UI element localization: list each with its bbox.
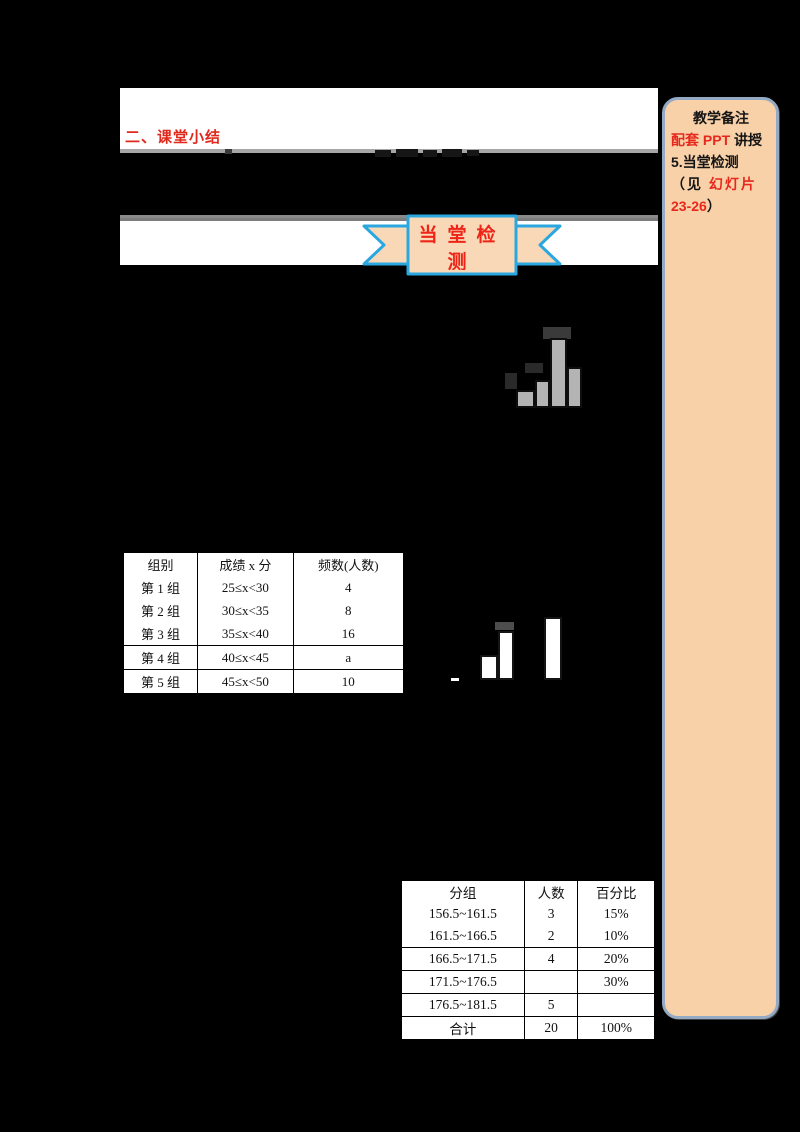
table-cell: 176.5~181.5 [401,994,524,1017]
table-row: 第 4 组 40≤x<45 a [123,646,404,670]
sidebar-black-text: （见 [671,176,709,192]
table-cell: 166.5~171.5 [401,948,524,971]
table-cell: a [293,646,404,670]
table-cell: 4 [524,948,578,971]
histogram-fragment-white [448,612,578,682]
table-header-cell: 分组 [401,880,524,903]
table-row: 176.5~181.5 5 [401,994,655,1017]
table-header-cell: 频数(人数) [293,552,404,576]
table-header-cell: 百分比 [578,880,655,903]
table-cell: 161.5~166.5 [401,925,524,948]
table-row: 166.5~171.5 4 20% [401,948,655,971]
sidebar-line-ppt: 配套 PPT 讲授 [671,129,771,151]
table-cell: 第 3 组 [123,622,198,646]
ribbon-title: 当堂检测 [410,222,514,270]
ribbon-banner: 当堂检测 [360,214,564,278]
table-header-row: 组别 成绩 x 分 频数(人数) [123,552,404,576]
sidebar-black-text: 讲授 [734,132,762,148]
table-header-cell: 人数 [524,880,578,903]
table-cell [578,994,655,1017]
table-cell: 2 [524,925,578,948]
table-cell: 8 [293,599,404,622]
masked-text-fragment [423,150,437,157]
sidebar-line-see: （见 幻灯片 [671,173,771,195]
table-cell: 35≤x<40 [198,622,294,646]
masked-content-band [120,149,658,218]
masked-text-fragment [396,149,418,157]
sidebar-red-text: 配套 PPT [671,132,734,148]
table-cell: 合计 [401,1017,524,1041]
table-cell: 25≤x<30 [198,576,294,599]
table-row: 第 2 组 30≤x<35 8 [123,599,404,622]
table-row: 第 3 组 35≤x<40 16 [123,622,404,646]
table-header-cell: 组别 [123,552,198,576]
table-row: 156.5~161.5 3 15% [401,903,655,925]
table-row: 171.5~176.5 30% [401,971,655,994]
masked-fragment [505,373,517,389]
masked-fragment [525,363,543,373]
sidebar-black-text: ） [707,198,721,214]
masked-text-fragment [225,149,232,154]
table-header-row: 分组 人数 百分比 [401,880,655,903]
table-cell: 5 [524,994,578,1017]
histogram-bar [480,655,498,680]
table-cell: 第 1 组 [123,576,198,599]
histogram-bar [567,367,582,408]
sidebar-line-test: 5.当堂检测 [671,151,771,173]
table-cell: 3 [524,903,578,925]
table-cell: 10 [293,670,404,695]
masked-fragment [495,622,514,630]
table-cell: 4 [293,576,404,599]
table-cell: 15% [578,903,655,925]
table-cell: 20% [578,948,655,971]
table-row: 第 1 组 25≤x<30 4 [123,576,404,599]
page-top-strip: 二、课堂小结 [120,88,658,150]
score-frequency-table: 组别 成绩 x 分 频数(人数) 第 1 组 25≤x<30 4 第 2 组 3… [122,551,405,695]
table-cell: 第 4 组 [123,646,198,670]
table-cell: 40≤x<45 [198,646,294,670]
histogram-fragment-gray [505,325,595,410]
histogram-bar [498,631,514,680]
masked-text-fragment [467,150,479,156]
table-cell: 20 [524,1017,578,1041]
masked-text-fragment [375,150,391,157]
histogram-bar [544,617,562,680]
histogram-bar [535,380,550,408]
table-cell: 100% [578,1017,655,1041]
table-cell: 171.5~176.5 [401,971,524,994]
histogram-bar [550,338,567,408]
sidebar-red-text: 幻灯片 [709,176,757,192]
section-heading: 二、课堂小结 [125,126,221,147]
table-cell [524,971,578,994]
height-distribution-table: 分组 人数 百分比 156.5~161.5 3 15% 161.5~166.5 … [400,879,656,1041]
sidebar-line-slides: 23-26） [671,195,771,217]
table-cell: 16 [293,622,404,646]
sidebar-title: 教学备注 [671,107,771,129]
table-cell: 30≤x<35 [198,599,294,622]
masked-text-fragment [442,149,462,157]
table-cell: 45≤x<50 [198,670,294,695]
table-row: 161.5~166.5 2 10% [401,925,655,948]
table-cell: 第 5 组 [123,670,198,695]
table-cell: 第 2 组 [123,599,198,622]
axis-tick-fragment [451,678,459,681]
table-cell: 30% [578,971,655,994]
teaching-notes-sidebar: 教学备注 配套 PPT 讲授 5.当堂检测 （见 幻灯片 23-26） [662,97,779,1019]
table-cell: 10% [578,925,655,948]
table-cell: 156.5~161.5 [401,903,524,925]
sidebar-red-text: 23-26 [671,198,707,214]
histogram-bar [516,390,535,408]
table-total-row: 合计 20 100% [401,1017,655,1041]
table-row: 第 5 组 45≤x<50 10 [123,670,404,695]
table-header-cell: 成绩 x 分 [198,552,294,576]
